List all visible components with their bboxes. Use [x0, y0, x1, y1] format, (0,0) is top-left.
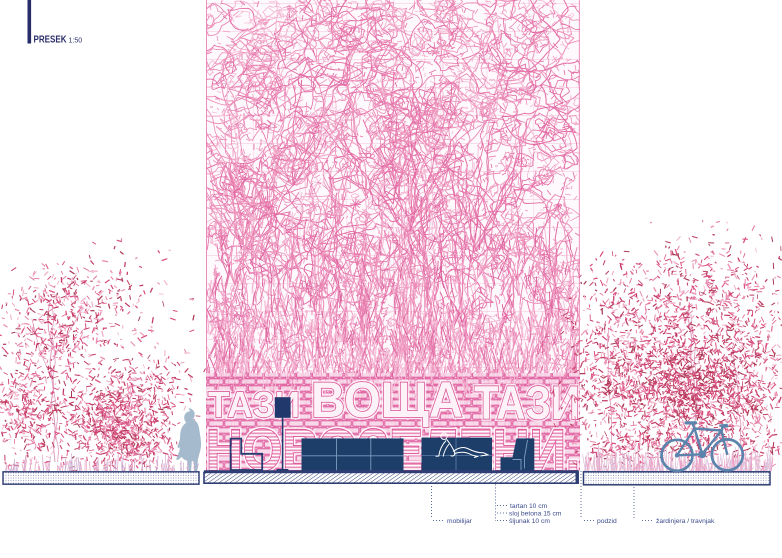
- svg-text:mobilijar: mobilijar: [447, 518, 473, 525]
- svg-text:šljunak 10 cm: šljunak 10 cm: [509, 518, 550, 525]
- svg-text:1:50: 1:50: [69, 38, 83, 45]
- svg-text:tartan 10 cm: tartan 10 cm: [510, 503, 548, 510]
- svg-text:sloj betona 15 cm: sloj betona 15 cm: [509, 511, 562, 518]
- svg-text:žardinjera / travnjak: žardinjera / travnjak: [656, 518, 715, 525]
- svg-text:podzid: podzid: [597, 518, 617, 525]
- svg-text:PRESEK: PRESEK: [34, 34, 67, 46]
